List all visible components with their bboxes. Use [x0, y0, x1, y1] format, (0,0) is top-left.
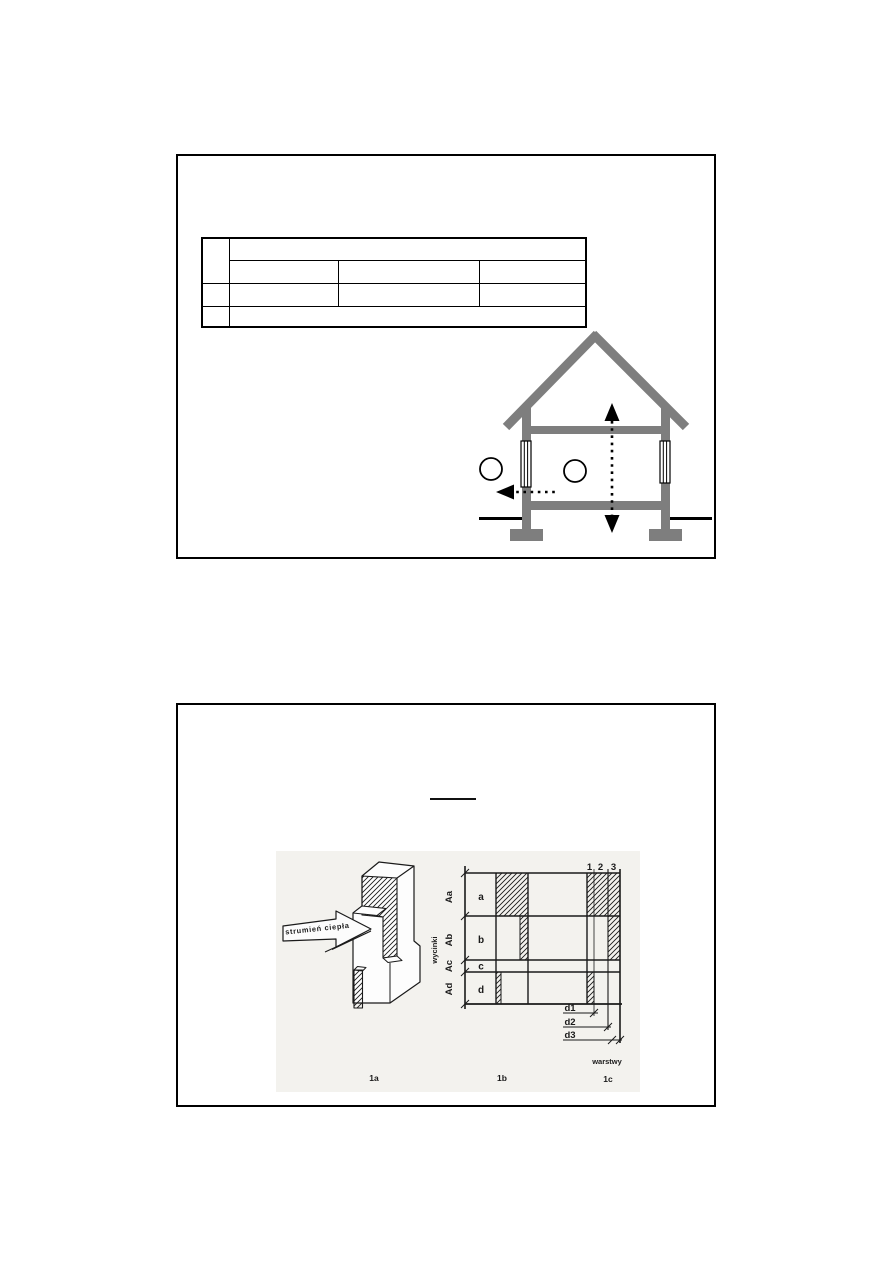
table-cell — [229, 238, 586, 260]
right-window — [660, 441, 670, 483]
table-cell — [229, 260, 338, 283]
row-label-Aa: Aa — [444, 890, 455, 903]
layer-number-2: 2 — [598, 862, 603, 873]
subfigure-captions: 1a 1b 1c — [369, 1073, 613, 1084]
top-figure-panel — [176, 154, 716, 559]
dim-label-d2: d2 — [564, 1017, 575, 1028]
table-cell — [229, 306, 586, 327]
caption-1b: 1b — [497, 1073, 507, 1083]
right-footing — [649, 529, 682, 541]
scanned-figure: strumień ciepła — [276, 851, 640, 1092]
layer-number-3: 3 — [611, 862, 616, 873]
caption-1c: 1c — [603, 1074, 613, 1084]
wall-section-figure: strumień ciepła — [276, 851, 640, 1092]
hatch-region — [496, 873, 528, 916]
bottom-axis-label: warstwy — [591, 1057, 622, 1066]
table-cell — [479, 260, 586, 283]
house-cross-section-diagram — [476, 330, 714, 544]
table-cell — [338, 283, 479, 306]
hatch-region — [496, 972, 501, 1004]
house-structure — [510, 407, 682, 541]
ground-line-left — [479, 517, 522, 520]
cut-label-d: d — [478, 985, 484, 996]
table-cell — [202, 306, 229, 327]
cut-label-b: b — [478, 935, 484, 946]
hatched-regions — [496, 873, 620, 1004]
table-cell — [202, 238, 229, 283]
roof-right-slope — [593, 334, 686, 427]
window-frame — [521, 441, 531, 487]
cut-label-a: a — [478, 892, 484, 903]
left-arrowhead-icon — [496, 485, 514, 500]
dim-label-d1: d1 — [564, 1003, 576, 1014]
outside-marker-circle — [480, 458, 502, 480]
cut-label-c: c — [478, 962, 484, 973]
hatch-region — [587, 873, 620, 916]
left-footing — [510, 529, 543, 541]
table-cell — [202, 283, 229, 306]
left-axis-label: wycinki — [430, 936, 439, 964]
window-frame — [660, 441, 670, 483]
bottom-figure-panel: strumień ciepła — [176, 703, 716, 1107]
ground-line-right — [670, 517, 712, 520]
up-arrowhead-icon — [605, 403, 620, 421]
hatch-region — [520, 916, 528, 960]
table-cell — [479, 283, 586, 306]
caption-1a: 1a — [369, 1073, 379, 1083]
section-grid: Aa Ab Ac Ad wycinki a b c d 1 2 3 d1 d2 — [430, 862, 624, 1066]
hatch-region — [587, 972, 594, 1004]
ceiling-slab — [522, 426, 670, 434]
hatch-region — [608, 916, 620, 960]
finish-slab-face — [354, 970, 363, 1008]
vertical-heat-flow-arrow — [605, 403, 620, 533]
table-cell — [229, 283, 338, 306]
empty-data-table — [201, 237, 587, 328]
roof-left-slope — [506, 334, 597, 427]
row-label-Ac: Ac — [444, 960, 455, 972]
document-page: strumień ciepła — [0, 0, 893, 1263]
table-cell — [338, 260, 479, 283]
floor-slab — [522, 501, 670, 510]
heading-underline — [430, 798, 476, 800]
row-label-Ab: Ab — [444, 933, 455, 946]
inside-marker-circle — [564, 460, 586, 482]
left-window — [521, 441, 531, 487]
row-label-Ad: Ad — [444, 982, 455, 995]
down-arrowhead-icon — [605, 515, 620, 533]
isometric-wall-sketch: strumień ciepła — [283, 862, 420, 1008]
layer-number-1: 1 — [587, 862, 593, 873]
dim-label-d3: d3 — [564, 1030, 575, 1041]
